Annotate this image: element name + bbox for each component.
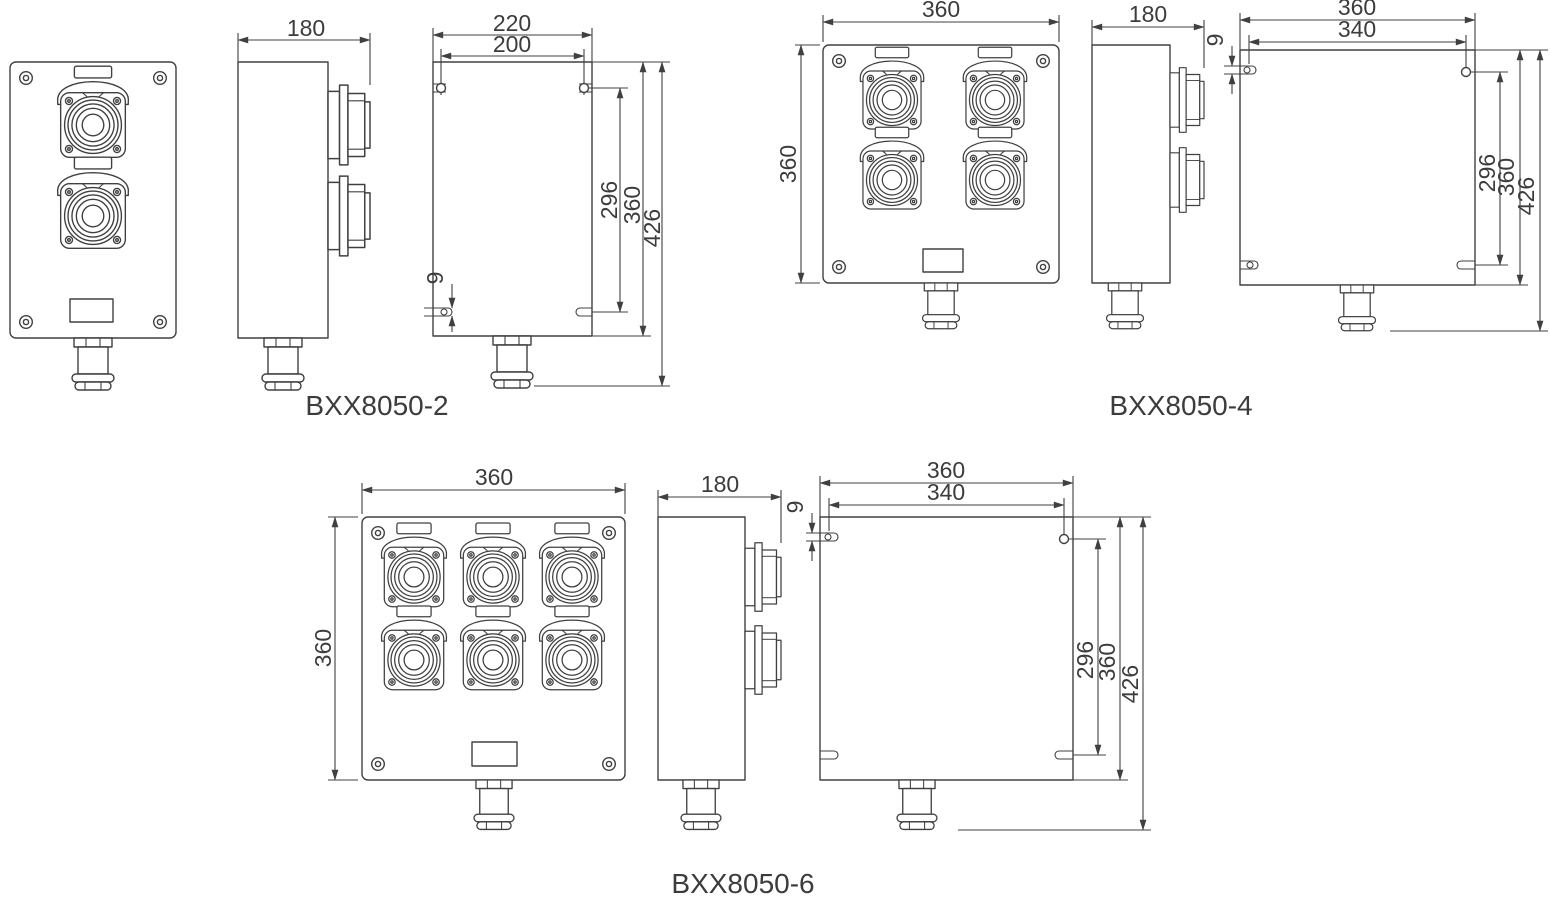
cable-gland	[1339, 285, 1376, 331]
bxx8050-6-front-view: 360 360	[310, 464, 625, 829]
mounting-hole	[580, 84, 589, 93]
model-bxx8050-4: 360 360 180 360 340	[775, 0, 1548, 421]
bxx8050-6-rear-view: 360 340 9 296 360 426	[782, 457, 1151, 830]
dim-label-hole-spacing: 200	[493, 31, 531, 57]
bxx8050-6-side-view: 180	[658, 471, 781, 829]
dim-label-slot-width: 9	[422, 272, 448, 285]
nameplate	[70, 299, 113, 322]
bxx8050-4-side-view: 180	[1092, 1, 1204, 329]
model-caption: BXX8050-4	[1109, 390, 1252, 421]
bxx8050-2-side-view: 180	[238, 15, 370, 390]
dim-label-hole-spacing: 340	[927, 479, 965, 505]
dim-label-front-width: 360	[922, 0, 960, 22]
mounting-hole	[1060, 535, 1069, 544]
bxx8050-2-rear-view: 220 200 296 360 426	[422, 10, 670, 388]
technical-drawing-canvas: 180 220 200 296 360 426	[0, 0, 1550, 911]
nameplate	[923, 249, 963, 272]
dim-label-front-height: 360	[310, 629, 336, 667]
dim-label-slot-width: 9	[1202, 34, 1228, 47]
cable-gland	[1107, 283, 1144, 329]
dim-label-depth: 180	[701, 471, 739, 497]
model-bxx8050-2: 180 220 200 296 360 426	[10, 10, 670, 421]
dim-label-total-height: 426	[639, 209, 665, 247]
cover-screw-icon	[20, 72, 33, 85]
nameplate	[472, 742, 517, 766]
bxx8050-4-front-view: 360 360	[775, 0, 1059, 329]
dim-label-front-height: 360	[775, 145, 801, 183]
dim-label-total-height: 426	[1117, 665, 1143, 703]
dim-label-front-width: 360	[475, 464, 513, 490]
cable-gland	[474, 780, 514, 829]
cable-gland	[262, 338, 304, 390]
mounting-hole	[1462, 68, 1471, 77]
dim-label-depth: 180	[287, 15, 325, 41]
mounting-hole	[437, 84, 446, 93]
cable-gland	[491, 336, 533, 388]
dim-label-slot-width: 9	[782, 501, 808, 514]
bxx8050-4-rear-view: 360 340 9 296 360 426	[1202, 0, 1548, 331]
cable-gland	[923, 283, 960, 329]
cable-gland	[897, 780, 937, 829]
cable-gland	[72, 338, 114, 390]
model-bxx8050-6: 360 360 180 360 340	[310, 457, 1151, 899]
model-caption: BXX8050-2	[305, 390, 448, 421]
dim-label-total-height: 426	[1513, 177, 1539, 215]
dim-label-depth: 180	[1129, 1, 1167, 27]
model-caption: BXX8050-6	[671, 868, 814, 899]
cable-gland	[681, 780, 721, 829]
bxx8050-2-front-view	[10, 62, 176, 390]
dim-label-hole-spacing: 340	[1338, 16, 1376, 42]
